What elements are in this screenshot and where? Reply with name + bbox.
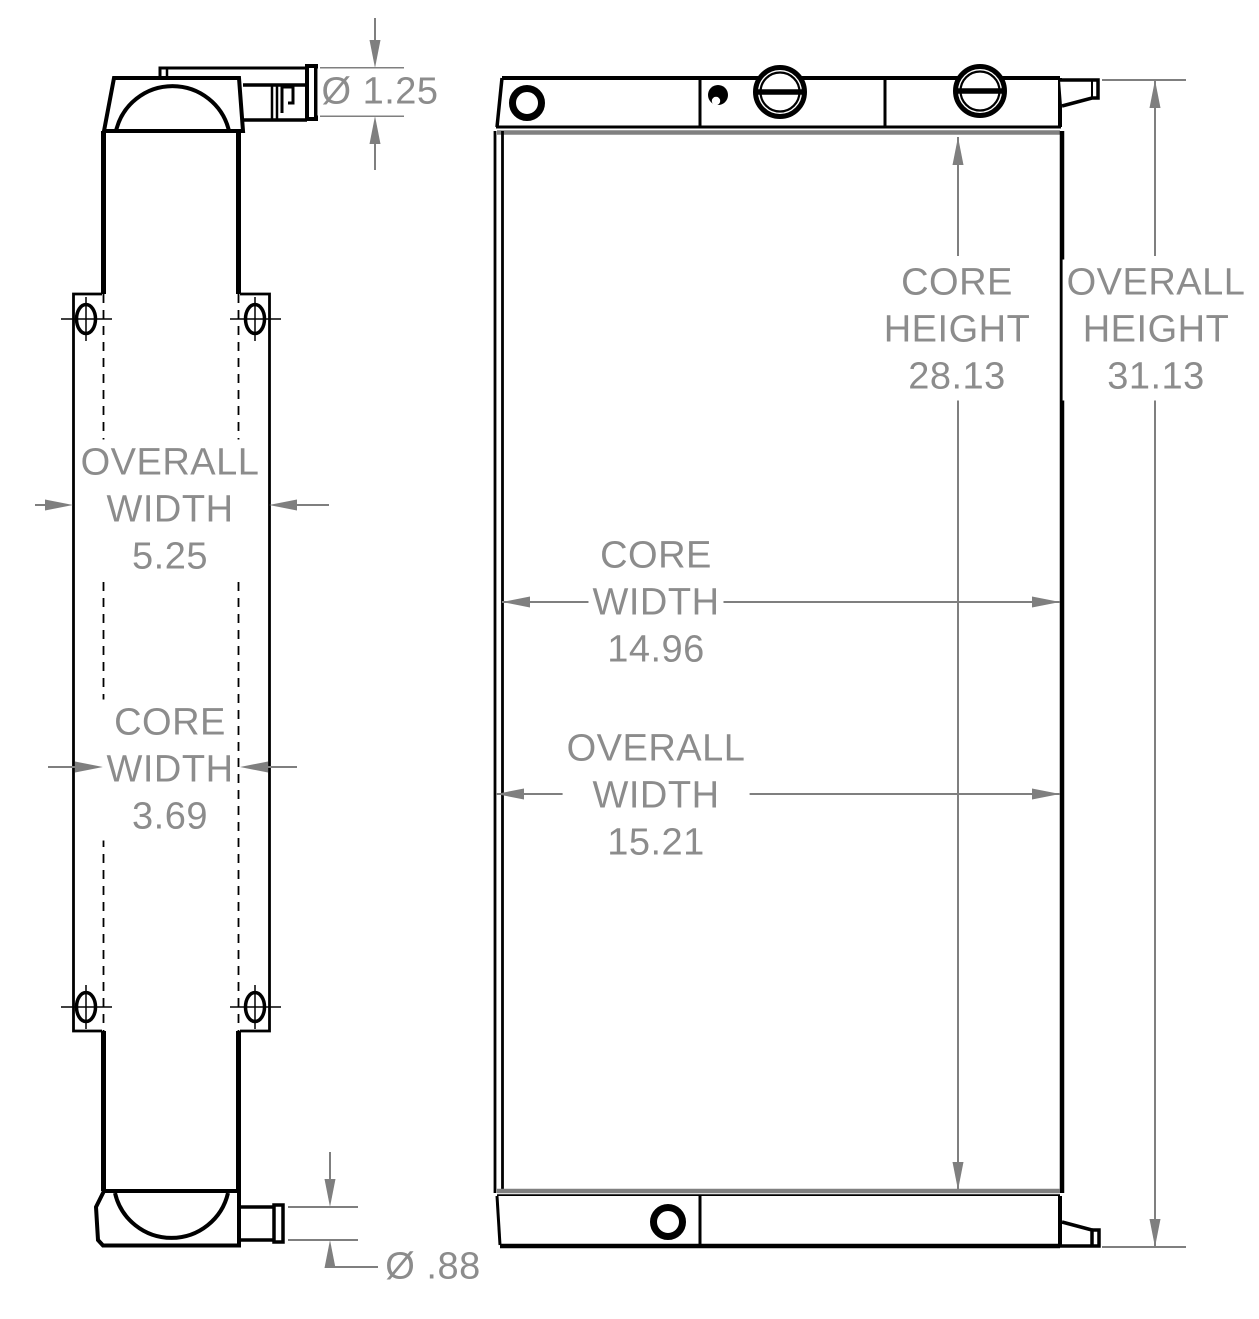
dim-front-overall-height [1102, 80, 1186, 1247]
side-bottom-pipe-flange [274, 1205, 283, 1242]
dimension-label-side-top-port-diameter: Ø 1.25 [317, 69, 442, 116]
side-core-edges-hidden-dashed [104, 294, 239, 1031]
dimension-label-front-core-height: CORE HEIGHT 28.13 [880, 260, 1035, 401]
dimension-text-line: HEIGHT [884, 307, 1031, 354]
dimension-text-line: OVERALL [81, 440, 260, 487]
dimension-text-line: HEIGHT [1067, 307, 1246, 354]
side-top-pipe-coupler [272, 85, 277, 120]
front-bottom-tank [497, 1196, 1060, 1246]
dimension-text-line: CORE [106, 700, 233, 747]
dimension-value: 31.13 [1067, 354, 1246, 401]
front-top-right-tab [1060, 80, 1098, 106]
dimension-value: Ø .88 [385, 1244, 480, 1291]
front-filler-cap-right [956, 67, 1005, 116]
dimension-value: 3.69 [106, 794, 233, 841]
dimension-value: 5.25 [81, 534, 260, 581]
side-view [61, 66, 316, 1246]
side-top-pipe-tube [243, 85, 307, 120]
dimension-label-front-core-width: CORE WIDTH 14.96 [588, 533, 723, 674]
side-top-bracket-plate [160, 68, 311, 77]
dimension-text-line: CORE [592, 533, 719, 580]
front-top-left-port-ring [513, 89, 542, 118]
side-core-edges-solid [104, 131, 239, 1191]
dimension-text-line: CORE [884, 260, 1031, 307]
front-bottom-right-tab [1060, 1222, 1099, 1246]
dimension-text-line: OVERALL [567, 726, 746, 773]
dimension-value: 15.21 [567, 820, 746, 867]
side-top-pipe-flange [307, 66, 316, 119]
side-bottom-pipe-tube [239, 1207, 275, 1240]
dimension-text-line: WIDTH [81, 487, 260, 534]
front-top-plug-highlight [712, 97, 720, 105]
dimension-value: 14.96 [592, 627, 719, 674]
dimension-text-line: OVERALL [1067, 260, 1246, 307]
dimension-text-line: WIDTH [567, 773, 746, 820]
front-filler-cap-left [756, 68, 805, 117]
dimension-text-line: WIDTH [106, 747, 233, 794]
dimension-label-front-overall-height: OVERALL HEIGHT 31.13 [1063, 260, 1250, 401]
dim-side-bottom-port-diameter [288, 1152, 378, 1268]
dimension-value: Ø 1.25 [321, 69, 438, 116]
front-view [495, 67, 1099, 1247]
side-left-mounting-bracket [74, 294, 103, 1031]
side-top-pipe-clamp [282, 87, 293, 113]
dimension-label-front-overall-width: OVERALL WIDTH 15.21 [563, 726, 750, 867]
front-bottom-drain-ring [654, 1208, 683, 1237]
dimension-label-side-bottom-port-diameter: Ø .88 [381, 1244, 484, 1291]
dim-front-core-width [502, 597, 1060, 608]
radiator-technical-drawing: Ø 1.25 OVERALL WIDTH 5.25 CORE WIDTH 3.6… [0, 0, 1259, 1319]
side-right-mounting-bracket [240, 294, 270, 1031]
dimension-label-side-overall-width: OVERALL WIDTH 5.25 [77, 440, 264, 581]
dimension-label-side-core-width: CORE WIDTH 3.69 [102, 700, 237, 841]
dimension-value: 28.13 [884, 354, 1031, 401]
dimension-text-line: WIDTH [592, 580, 719, 627]
